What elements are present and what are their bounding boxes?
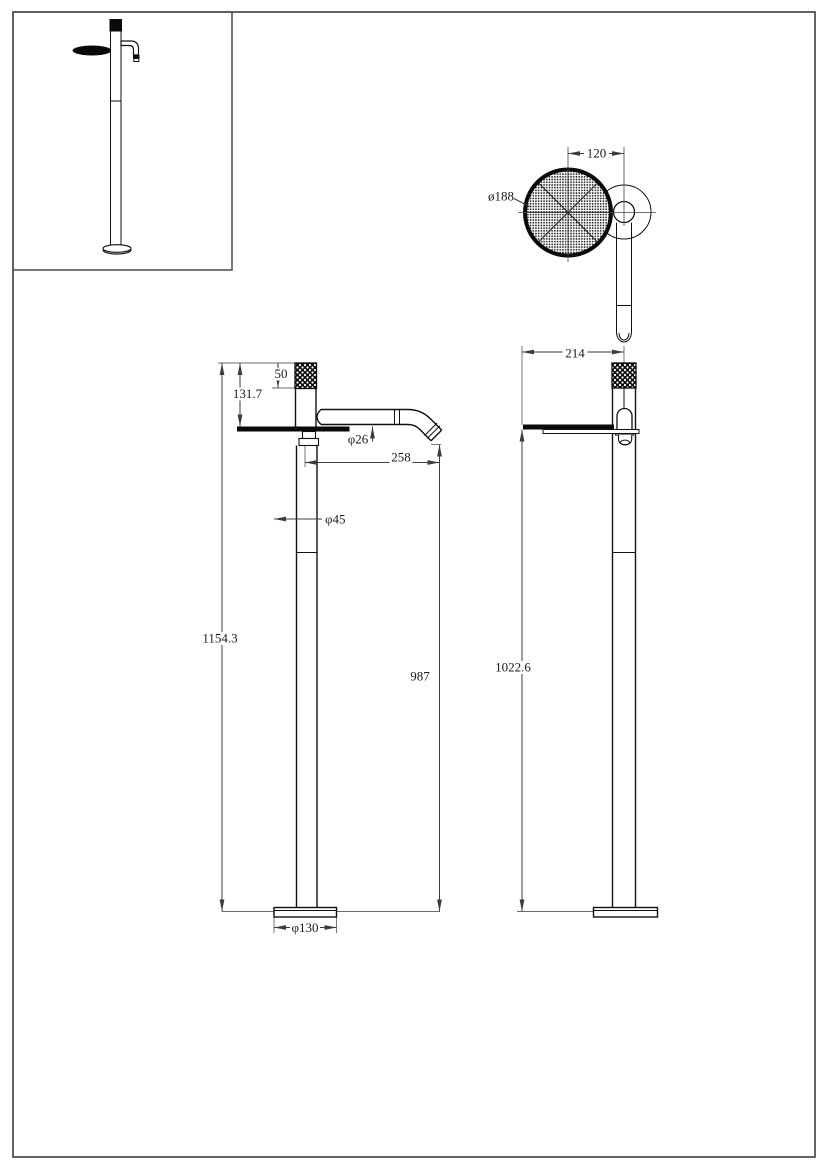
top-view: 120 ø188 — [488, 146, 656, 343]
front-knurled-cap — [295, 363, 317, 389]
dimension-handle-depth: 214 — [522, 346, 624, 361]
side-spout-end — [616, 409, 634, 445]
dim-base-diameter-label: φ130 — [291, 920, 318, 935]
drawing-sheet: 120 ø188 — [0, 0, 827, 1170]
technical-drawing: 120 ø188 — [0, 0, 827, 1170]
dimension-base-diameter: φ130 — [274, 920, 337, 935]
front-spout — [317, 409, 442, 440]
dim-handle-depth-label: 214 — [565, 346, 585, 361]
side-handle-disc-edge — [523, 425, 614, 430]
inset-base — [103, 245, 131, 253]
inset-aerator-tip — [134, 59, 139, 62]
inset-cap — [110, 19, 123, 32]
dim-column-diameter-label: φ45 — [325, 512, 346, 527]
dimension-handle-diameter: ø188 — [488, 189, 530, 207]
front-column — [297, 446, 318, 908]
front-connector-upper — [303, 432, 316, 439]
front-view: 1154.3 131.7 50 φ26 258 φ45 987 — [199, 363, 442, 935]
dimension-column-diameter: φ45 — [274, 512, 346, 527]
dimension-handle-offset: 120 — [568, 146, 624, 161]
dim-spout-outlet-height-label: 987 — [410, 669, 430, 684]
front-connector-lower — [299, 439, 319, 446]
dimension-total-height: 1154.3 — [199, 363, 241, 912]
dim-handle-center-height-label: 1022.6 — [495, 660, 531, 675]
inset-spout — [121, 41, 139, 55]
dimension-spout-reach: 258 — [305, 450, 440, 465]
dim-spout-diameter-label: φ26 — [348, 432, 369, 447]
side-view: 214 1022.6 — [492, 346, 658, 918]
dim-cap-height-label: 50 — [275, 366, 288, 381]
dimension-handle-center-height: 1022.6 — [492, 430, 535, 912]
dimension-spout-diameter: φ26 — [348, 427, 373, 447]
inset-box — [13, 12, 232, 270]
inset-faucet-thumbnail — [73, 19, 140, 254]
dimension-upper-section: 131.7 — [231, 363, 264, 427]
top-view-spout — [617, 223, 632, 343]
dimension-spout-outlet-height: 987 — [408, 445, 440, 912]
dim-upper-section-label: 131.7 — [233, 386, 263, 401]
dimension-cap-height: 50 — [273, 363, 289, 388]
dim-total-height-label: 1154.3 — [202, 631, 237, 646]
dim-handle-diameter-label: ø188 — [488, 189, 514, 204]
side-base — [594, 908, 658, 918]
front-base — [274, 908, 337, 918]
front-handle-disc-edge — [237, 427, 350, 432]
side-handle-bracket — [543, 430, 639, 434]
side-column — [613, 388, 636, 908]
inset-aerator-band — [133, 55, 140, 59]
dim-spout-reach-label: 258 — [391, 450, 411, 465]
side-knurled-cap — [612, 363, 636, 388]
dim-handle-offset-label: 120 — [587, 146, 607, 161]
inset-handle-disc — [73, 46, 112, 56]
page-border — [13, 12, 815, 1157]
